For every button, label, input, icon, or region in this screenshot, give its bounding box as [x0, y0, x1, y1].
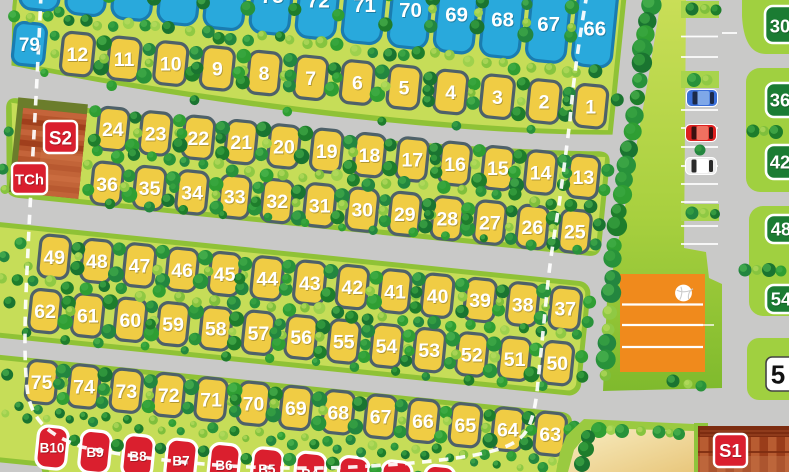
svg-text:69: 69 — [445, 4, 468, 27]
svg-text:B10: B10 — [40, 440, 65, 455]
svg-text:25: 25 — [564, 221, 586, 243]
svg-text:51: 51 — [504, 349, 526, 371]
svg-text:73: 73 — [116, 381, 138, 403]
svg-text:68: 68 — [491, 8, 514, 31]
svg-text:71: 71 — [353, 0, 376, 17]
svg-text:19: 19 — [316, 141, 338, 163]
svg-text:15: 15 — [487, 158, 509, 180]
svg-text:B9: B9 — [86, 445, 103, 460]
svg-text:21: 21 — [230, 132, 252, 154]
svg-text:9: 9 — [212, 58, 223, 80]
svg-text:28: 28 — [436, 208, 458, 230]
svg-text:32: 32 — [266, 191, 288, 213]
svg-text:53: 53 — [418, 340, 440, 362]
svg-text:14: 14 — [530, 163, 552, 185]
svg-text:42: 42 — [342, 277, 364, 299]
svg-text:35: 35 — [139, 178, 161, 200]
svg-text:39: 39 — [469, 290, 491, 312]
svg-text:18: 18 — [359, 145, 381, 167]
svg-text:37: 37 — [554, 299, 576, 321]
svg-text:67: 67 — [370, 407, 392, 429]
svg-text:TCh: TCh — [15, 171, 44, 188]
svg-text:54: 54 — [771, 289, 789, 310]
svg-text:13: 13 — [573, 167, 595, 189]
svg-text:54: 54 — [376, 336, 398, 358]
svg-text:43: 43 — [299, 273, 321, 295]
svg-text:72: 72 — [158, 385, 180, 407]
svg-text:1: 1 — [585, 96, 596, 118]
svg-text:59: 59 — [162, 314, 184, 336]
svg-text:48: 48 — [771, 219, 789, 240]
svg-text:74: 74 — [215, 0, 238, 3]
svg-text:62: 62 — [34, 301, 56, 323]
svg-text:22: 22 — [188, 128, 210, 150]
svg-text:68: 68 — [327, 402, 349, 424]
svg-text:23: 23 — [145, 123, 167, 145]
svg-text:66: 66 — [412, 411, 434, 433]
svg-text:69: 69 — [285, 398, 307, 420]
svg-text:B4: B4 — [301, 467, 319, 472]
svg-text:48: 48 — [86, 251, 108, 273]
svg-text:7: 7 — [305, 68, 316, 90]
svg-text:27: 27 — [479, 213, 501, 235]
svg-text:2: 2 — [539, 92, 550, 114]
svg-text:41: 41 — [384, 281, 406, 303]
svg-text:72: 72 — [307, 0, 330, 13]
svg-text:36: 36 — [96, 174, 118, 196]
svg-text:30: 30 — [770, 16, 789, 37]
svg-text:71: 71 — [200, 389, 222, 411]
svg-text:74: 74 — [73, 377, 95, 399]
svg-text:73: 73 — [261, 0, 284, 8]
svg-text:63: 63 — [539, 424, 561, 446]
svg-text:26: 26 — [522, 217, 544, 239]
svg-text:33: 33 — [224, 187, 246, 209]
svg-text:B8: B8 — [129, 449, 147, 464]
svg-text:79: 79 — [19, 35, 40, 56]
svg-text:49: 49 — [43, 247, 65, 269]
svg-text:75: 75 — [31, 372, 53, 394]
svg-text:3: 3 — [492, 87, 503, 109]
svg-text:45: 45 — [214, 264, 236, 286]
svg-text:52: 52 — [461, 345, 483, 367]
svg-text:50: 50 — [546, 353, 568, 375]
svg-text:70: 70 — [243, 394, 265, 416]
svg-text:B7: B7 — [172, 454, 189, 469]
svg-text:58: 58 — [205, 319, 227, 341]
svg-text:29: 29 — [394, 204, 416, 226]
svg-text:B6: B6 — [215, 458, 233, 472]
svg-text:61: 61 — [77, 306, 99, 328]
svg-text:66: 66 — [583, 18, 606, 41]
svg-text:S1: S1 — [719, 440, 742, 461]
svg-text:B5: B5 — [258, 462, 276, 472]
svg-text:56: 56 — [290, 327, 312, 349]
svg-text:11: 11 — [114, 49, 135, 71]
svg-text:42: 42 — [770, 152, 789, 173]
svg-text:60: 60 — [120, 310, 142, 332]
svg-text:20: 20 — [273, 137, 295, 159]
svg-text:24: 24 — [102, 119, 124, 141]
svg-text:10: 10 — [160, 54, 182, 76]
svg-text:67: 67 — [537, 13, 560, 36]
svg-text:40: 40 — [427, 286, 449, 308]
svg-text:57: 57 — [248, 323, 270, 345]
svg-text:65: 65 — [455, 415, 477, 437]
svg-text:8: 8 — [259, 63, 270, 85]
svg-text:S2: S2 — [49, 128, 72, 149]
svg-text:64: 64 — [497, 420, 519, 442]
svg-text:12: 12 — [67, 44, 89, 66]
svg-text:55: 55 — [333, 332, 355, 354]
svg-text:6: 6 — [352, 73, 363, 95]
svg-text:44: 44 — [256, 269, 278, 291]
svg-text:36: 36 — [770, 90, 789, 111]
svg-text:31: 31 — [309, 195, 331, 217]
svg-text:46: 46 — [171, 260, 193, 282]
svg-text:34: 34 — [181, 182, 203, 204]
svg-text:5: 5 — [399, 77, 410, 99]
svg-text:16: 16 — [444, 154, 466, 176]
svg-text:17: 17 — [401, 150, 423, 172]
svg-text:38: 38 — [512, 294, 534, 316]
svg-text:70: 70 — [399, 0, 422, 22]
svg-text:4: 4 — [445, 82, 456, 104]
svg-text:5: 5 — [771, 359, 785, 389]
svg-text:30: 30 — [351, 200, 373, 222]
svg-text:47: 47 — [129, 256, 151, 278]
